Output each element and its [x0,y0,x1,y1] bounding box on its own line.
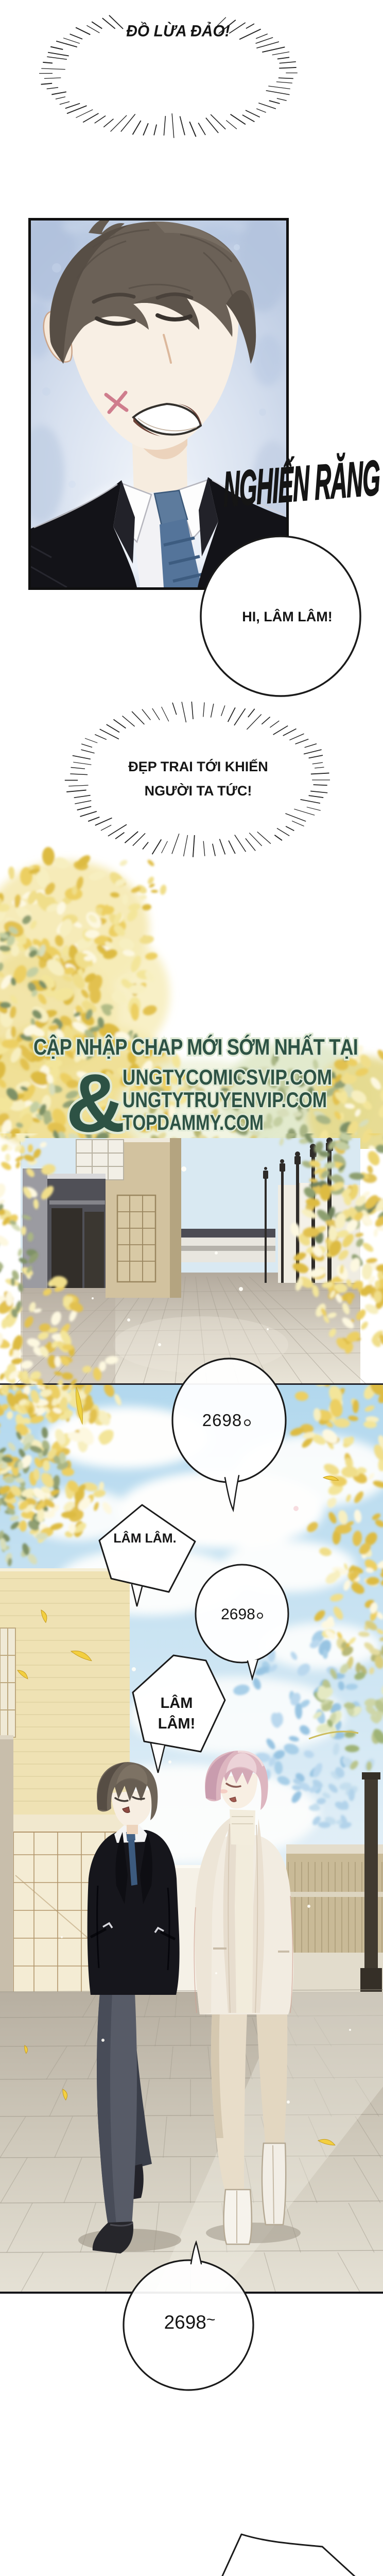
svg-text:UNGTYTRUYENVIP.COM: UNGTYTRUYENVIP.COM [123,1088,327,1112]
svg-text:UNGTYCOMICSVIP.COM: UNGTYCOMICSVIP.COM [123,1065,332,1089]
svg-text:CẬP NHẬP CHAP MỚI SỚM NHẤT TẠI: CẬP NHẬP CHAP MỚI SỚM NHẤT TẠI [33,1034,358,1060]
svg-text:TOPDAMMY.COM: TOPDAMMY.COM [123,1110,264,1134]
